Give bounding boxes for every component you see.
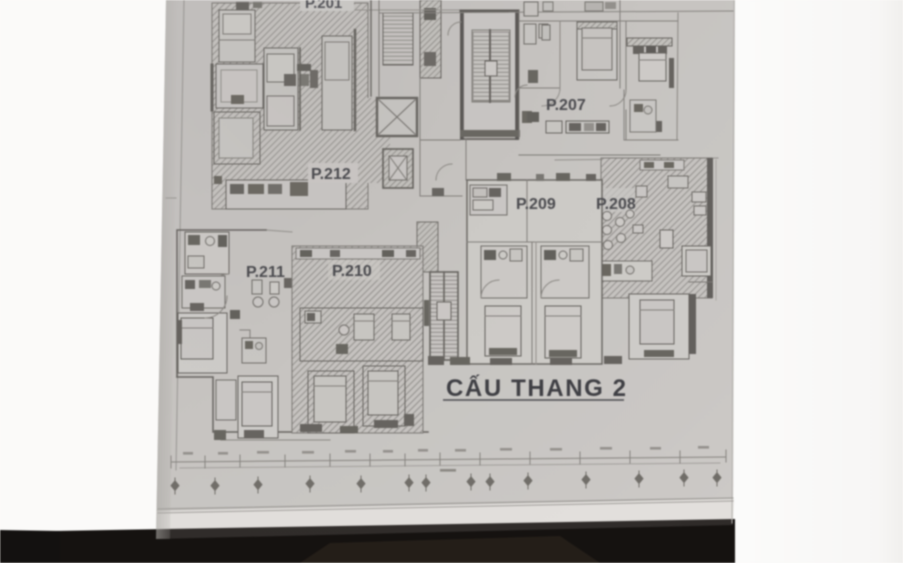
svg-text:P.208: P.208 — [596, 196, 636, 213]
svg-text:P.209: P.209 — [516, 196, 556, 213]
svg-text:P.211: P.211 — [246, 264, 285, 281]
svg-text:CẤU THANG 2: CẤU THANG 2 — [446, 374, 628, 402]
svg-text:P.201: P.201 — [305, 0, 342, 12]
svg-text:P.207: P.207 — [546, 97, 586, 114]
svg-text:P.212: P.212 — [311, 166, 351, 183]
svg-text:P.210: P.210 — [332, 263, 372, 280]
